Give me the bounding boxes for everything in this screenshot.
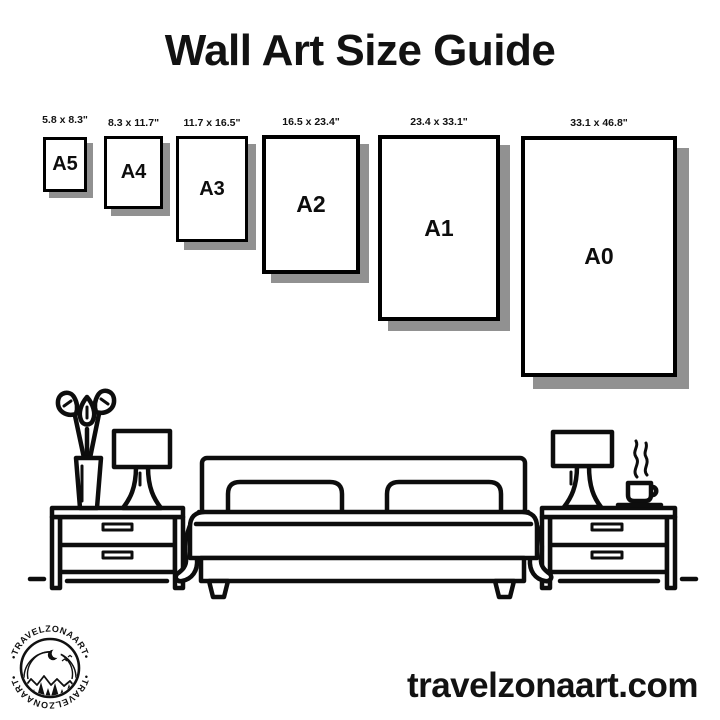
brand-logo-badge: •TRAVELZONAART• •TRAVELZONAART• [4, 621, 96, 713]
pillow-right [387, 482, 501, 513]
size-frame-a3: A3 [176, 136, 248, 242]
wall-art-size-guide-page: Wall Art Size Guide 5.8 x 8.3" A5 8.3 x … [0, 0, 720, 720]
size-frame-a5: A5 [43, 137, 87, 192]
size-frame-a0: A0 [521, 136, 677, 377]
bed-leg-left [209, 581, 228, 597]
size-dimensions-a5: 5.8 x 8.3" [33, 114, 97, 126]
bed-base [201, 558, 524, 581]
size-name-a1: A1 [424, 215, 453, 242]
bed-leg-right [495, 581, 514, 597]
coffee-cup-icon [618, 441, 661, 505]
plant-vase-icon [58, 391, 114, 508]
page-title: Wall Art Size Guide [0, 26, 720, 76]
nightstand-right-icon [542, 508, 675, 588]
pillow-left [228, 482, 342, 513]
size-name-a4: A4 [121, 161, 147, 184]
table-lamp-right-icon [553, 432, 612, 507]
bed-icon [176, 458, 551, 597]
website-url: travelzonaart.com [407, 666, 698, 706]
size-name-a0: A0 [584, 243, 613, 270]
size-dimensions-a0: 33.1 x 46.8" [549, 117, 649, 129]
size-name-a5: A5 [52, 153, 78, 176]
bedroom-illustration [0, 380, 720, 610]
size-dimensions-a2: 16.5 x 23.4" [261, 116, 361, 128]
size-name-a2: A2 [296, 191, 325, 218]
nightstand-left-icon [52, 508, 183, 588]
size-dimensions-a1: 23.4 x 33.1" [389, 116, 489, 128]
size-dimensions-a3: 11.7 x 16.5" [162, 117, 262, 129]
mattress-blanket [190, 512, 537, 558]
size-frame-a4: A4 [104, 136, 163, 209]
size-frame-a2: A2 [262, 135, 360, 274]
size-name-a3: A3 [199, 178, 225, 201]
table-lamp-left-icon [114, 431, 170, 508]
size-frame-a1: A1 [378, 135, 500, 321]
